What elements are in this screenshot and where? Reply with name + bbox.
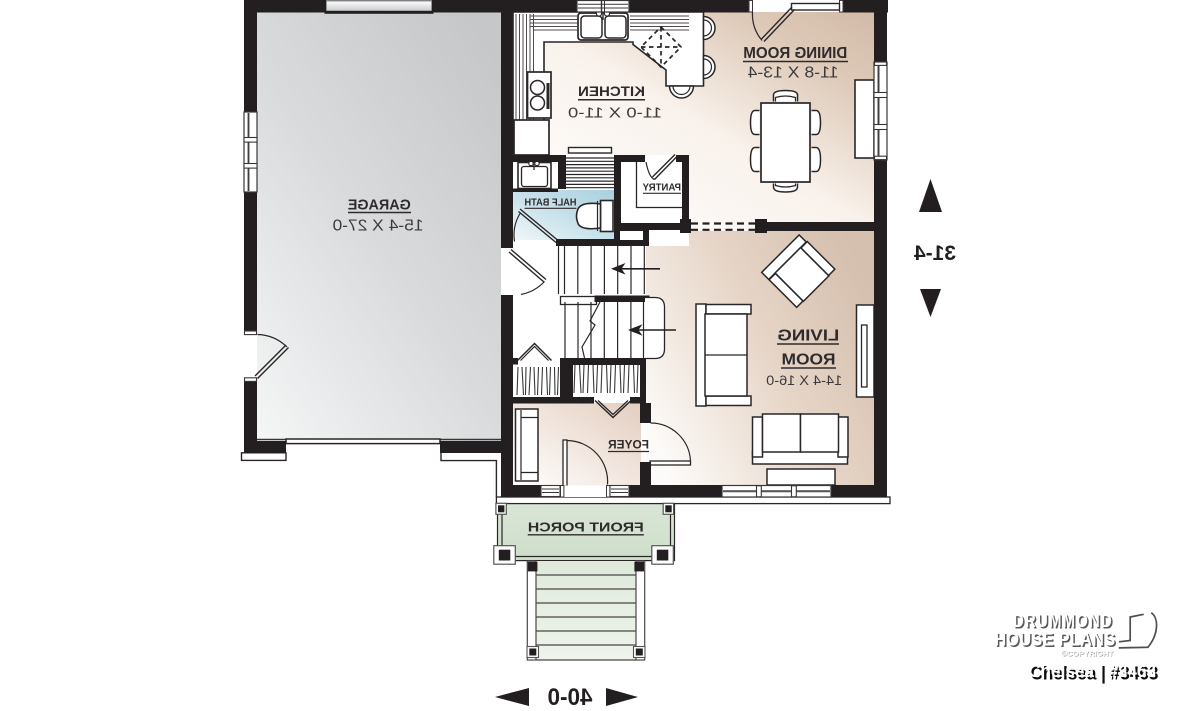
svg-text:KITCHEN: KITCHEN bbox=[578, 83, 645, 99]
svg-text:GARAGE: GARAGE bbox=[348, 197, 411, 214]
svg-text:LIVING: LIVING bbox=[777, 328, 839, 345]
svg-text:DRUMMOND: DRUMMOND bbox=[1013, 611, 1113, 631]
svg-text:ROOM: ROOM bbox=[782, 352, 836, 369]
svg-text:40-0: 40-0 bbox=[548, 684, 593, 711]
svg-text:15-4 X 27-0: 15-4 X 27-0 bbox=[332, 218, 423, 235]
svg-text:HALF BATH: HALF BATH bbox=[525, 197, 577, 209]
svg-text:FOYER: FOYER bbox=[607, 440, 649, 452]
svg-text:31-4: 31-4 bbox=[914, 242, 956, 265]
svg-text:DINING ROOM: DINING ROOM bbox=[743, 45, 847, 62]
svg-text:HOUSE PLANS: HOUSE PLANS bbox=[995, 630, 1116, 650]
svg-text:©COPYRIGHT: ©COPYRIGHT bbox=[1062, 650, 1115, 658]
svg-text:14-4 X 16-0: 14-4 X 16-0 bbox=[766, 373, 842, 388]
svg-text:11-8 X 13-4: 11-8 X 13-4 bbox=[747, 65, 838, 82]
svg-text:FRONT PORCH: FRONT PORCH bbox=[528, 520, 644, 535]
svg-text:Chelsea | #3463: Chelsea | #3463 bbox=[1028, 661, 1156, 681]
svg-text:PANTRY: PANTRY bbox=[643, 182, 682, 194]
svg-text:11-0 X 11-0: 11-0 X 11-0 bbox=[568, 105, 662, 122]
